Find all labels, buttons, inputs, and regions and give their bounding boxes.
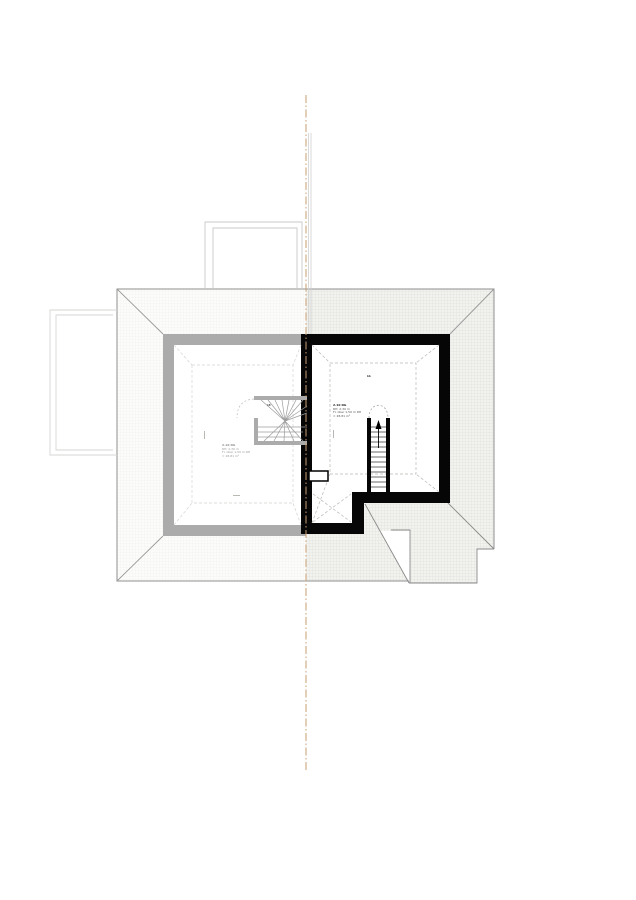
stair-direction-arrow	[376, 420, 382, 448]
chimney-niche	[309, 471, 328, 481]
room-label-left: 2.10 DG RH: 2,30 m Fl. über 1,50 m RH = …	[222, 444, 250, 458]
dormer-outline-top	[205, 222, 302, 289]
stair-headroom-arc-left	[237, 399, 254, 418]
floorplan-svg	[0, 0, 636, 900]
room-label-right: 2.10 DG RH: 2,30 m Fl. über 1,50 m RH = …	[333, 404, 361, 418]
stair-count-label: 18	[267, 405, 271, 408]
stair-right	[367, 405, 390, 493]
room-label-right-line4: = 28,81 m²	[333, 415, 361, 419]
section-marker-label: bb	[367, 376, 371, 379]
dimension-ticks	[204, 430, 334, 496]
room-label-left-line4: = 28,81 m²	[222, 455, 250, 459]
stair-left	[237, 396, 307, 445]
stair-headroom-arc-right	[369, 405, 388, 418]
roof-hatch-right	[306, 289, 494, 583]
floorplan-page: 2.10 DG RH: 2,30 m Fl. über 1,50 m RH = …	[0, 0, 636, 900]
outline-left	[50, 310, 117, 455]
ceiling-dashed-left	[174, 345, 301, 525]
